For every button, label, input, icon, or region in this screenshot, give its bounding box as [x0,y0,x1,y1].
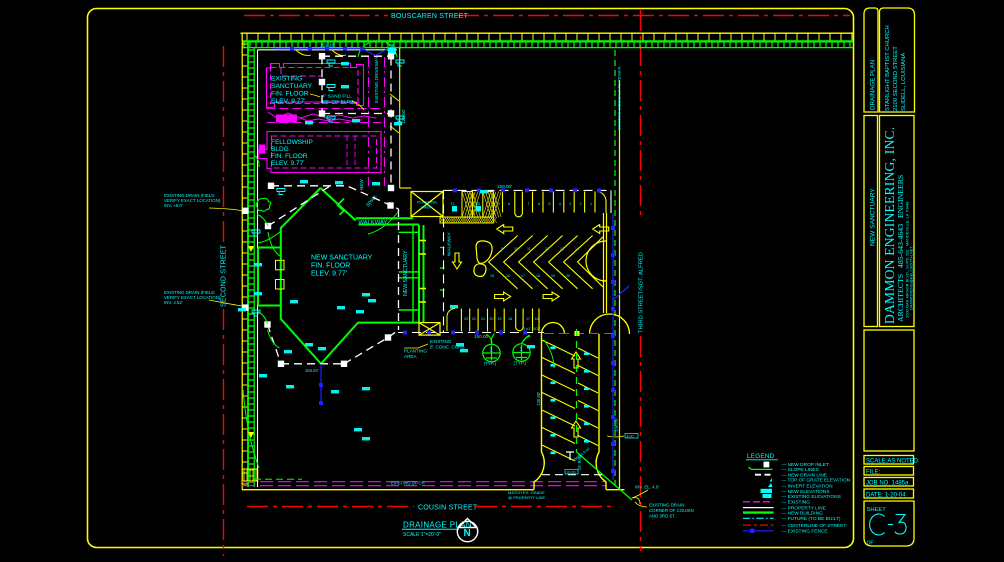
svg-text:150.00': 150.00' [614,418,619,432]
svg-text:1'x1' BOX: 1'x1' BOX [523,326,541,331]
svg-text:STARLIGHT BAPTIST CHURCH: STARLIGHT BAPTIST CHURCH [885,25,891,111]
svg-text:EXISTING DITCH: EXISTING DITCH [391,481,425,486]
svg-text:17: 17 [526,317,530,321]
svg-text:T1: T1 [450,201,455,206]
svg-text:26' R/W: 26' R/W [577,455,582,470]
svg-text:11: 11 [527,247,531,251]
svg-text:1: 1 [520,347,523,353]
svg-text:COUSIN STREET: COUSIN STREET [418,505,478,512]
svg-text:@ PROPERTY LINE: @ PROPERTY LINE [508,495,545,500]
svg-text:AND 3RD ST.: AND 3RD ST. [649,514,676,519]
svg-text:BLDG.: BLDG. [271,146,291,153]
svg-text:WALKWAY: WALKWAY [447,231,453,256]
svg-text:AREA: AREA [421,205,432,210]
svg-text:120.00': 120.00' [536,392,541,406]
svg-text:15: 15 [490,274,494,278]
svg-text:DAMMON ENGINEERING, INC.: DAMMON ENGINEERING, INC. [882,127,897,324]
svg-text:— EXISTING FENCE: — EXISTING FENCE [782,529,828,535]
svg-text:— NEW BUILDING: — NEW BUILDING [782,510,824,516]
svg-text:16: 16 [506,274,510,278]
svg-text:8: 8 [508,202,510,206]
svg-text:19: 19 [498,317,502,321]
svg-text:BELOW BLDG.: BELOW BLDG. [322,99,355,105]
svg-text:3: 3 [569,202,571,206]
svg-text:12: 12 [545,247,549,251]
svg-text:OF: OF [867,541,874,547]
svg-text:151.18': 151.18' [320,42,335,47]
svg-text:(TYP.): (TYP.) [514,361,527,366]
svg-text:— SLOPE LINES: — SLOPE LINES [782,467,819,473]
svg-text:ELEV. 9.77': ELEV. 9.77' [311,271,347,278]
svg-text:23: 23 [464,317,468,321]
svg-text:EXISTING: EXISTING [271,76,302,83]
svg-text:EXISTING: EXISTING [430,339,452,344]
svg-text:8.00: 8.00 [627,434,634,438]
svg-text:5: 5 [548,202,550,206]
svg-text:16: 16 [535,317,539,321]
svg-text:N: N [464,528,471,539]
svg-text:20.00: 20.00 [567,470,576,474]
svg-text:4: 4 [559,202,561,206]
svg-text:CORNER OF COUSIN: CORNER OF COUSIN [649,508,694,513]
svg-text:14: 14 [575,247,579,251]
svg-text:153.04': 153.04' [305,368,319,373]
svg-text:21: 21 [481,317,485,321]
svg-text:9: 9 [498,202,500,206]
svg-text:17: 17 [521,274,525,278]
svg-text:20: 20 [490,317,494,321]
svg-text:18: 18 [508,317,512,321]
svg-text:22: 22 [472,317,476,321]
svg-text:DRAINAGE PLAN: DRAINAGE PLAN [870,60,877,110]
svg-text:BOUSCAREN STREET: BOUSCAREN STREET [391,13,469,20]
svg-text:— EXISTING: — EXISTING [782,500,811,506]
svg-text:NEW SANCTUARY: NEW SANCTUARY [311,255,373,262]
svg-text:CB: CB [389,43,395,48]
svg-text:WALKWAY: WALKWAY [359,220,388,226]
svg-text:7: 7 [528,202,530,206]
svg-text:DAMMONENG@BELLSOUTH.NET: DAMMONENG@BELLSOUTH.NET [909,246,914,310]
svg-text:— INVERT ELEVATION: — INVERT ELEVATION [782,483,834,489]
svg-text:NEW SANCTUARY: NEW SANCTUARY [403,250,409,296]
svg-text:SCALE 1"=20'-0": SCALE 1"=20'-0" [403,532,441,538]
svg-text:1B: 1B [475,201,480,206]
svg-text:(TYP.): (TYP.) [484,361,497,366]
svg-text:FELLOWSHIP: FELLOWSHIP [271,139,313,146]
svg-text:19: 19 [551,274,555,278]
svg-text:150.00': 150.00' [497,184,512,189]
svg-text:13: 13 [560,247,564,251]
svg-text:— FUTURE (TO BE BUILT): — FUTURE (TO BE BUILT) [782,516,841,522]
svg-text:10: 10 [514,247,518,251]
svg-text:FIN. FLOOR: FIN. FLOOR [271,153,308,160]
svg-text:INV. 4.52': INV. 4.52' [164,300,183,305]
svg-text:SECOND STREET: SECOND STREET [221,244,228,307]
svg-text:SCALE:AS NOTED: SCALE:AS NOTED [866,459,919,465]
svg-text:PLANTING: PLANTING [404,349,427,354]
svg-text:9: 9 [501,247,503,251]
svg-text:EXISTING DRAIN: EXISTING DRAIN [649,503,684,508]
svg-text:— TOP OF GRATE ELEVATION: — TOP OF GRATE ELEVATION [782,478,851,484]
svg-text:ELEV. 9.77': ELEV. 9.77' [271,98,306,105]
svg-text:FIN. FLOOR: FIN. FLOOR [311,263,350,270]
svg-text:18: 18 [536,274,540,278]
svg-text:INV. EL. 4.0': INV. EL. 4.0' [635,485,659,490]
svg-text:4" SAND FILL: 4" SAND FILL [322,94,352,100]
svg-text:FILE:: FILE: [866,470,881,476]
svg-text:LEGEND: LEGEND [747,453,775,460]
svg-text:2: 2 [490,348,493,354]
svg-text:NEW: NEW [359,179,364,190]
svg-text:THIRD STREET/SGT. ALFRED: THIRD STREET/SGT. ALFRED [639,252,645,333]
svg-text:SHEET: SHEET [867,507,887,513]
svg-text:JOB NO. 1485a: JOB NO. 1485a [866,481,909,487]
svg-text:DATE: 1-20-04: DATE: 1-20-04 [866,493,906,499]
svg-text:SANCTUARY: SANCTUARY [271,83,313,90]
svg-text:— NEW DRAIN LINE: — NEW DRAIN LINE [782,472,828,478]
svg-text:ELEV. 9.77': ELEV. 9.77' [271,160,305,167]
svg-text:EXISTING DRIVEWAY: EXISTING DRIVEWAY [374,56,379,103]
svg-text:INV. ≈8.0': INV. ≈8.0' [164,203,183,208]
svg-text:FIN. FLOOR: FIN. FLOOR [271,91,309,98]
svg-text:— CENTERLINE OF STREET: — CENTERLINE OF STREET [782,523,847,529]
svg-text:6: 6 [538,202,540,206]
svg-text:2100 SECOND STREET: 2100 SECOND STREET [893,46,899,111]
svg-text:— EXISTING ELEVATIONS: — EXISTING ELEVATIONS [782,494,841,500]
svg-text:NEW SANCTUARY: NEW SANCTUARY [870,188,877,246]
svg-text:SLIDELL, LOUISIANA: SLIDELL, LOUISIANA [901,53,907,111]
svg-text:EXISTING SIDEWALK TO REMAIN: EXISTING SIDEWALK TO REMAIN [617,66,622,130]
svg-text:AREA: AREA [404,354,417,359]
svg-text:2: 2 [580,202,582,206]
svg-text:1: 1 [590,202,592,206]
svg-text:20: 20 [566,274,570,278]
